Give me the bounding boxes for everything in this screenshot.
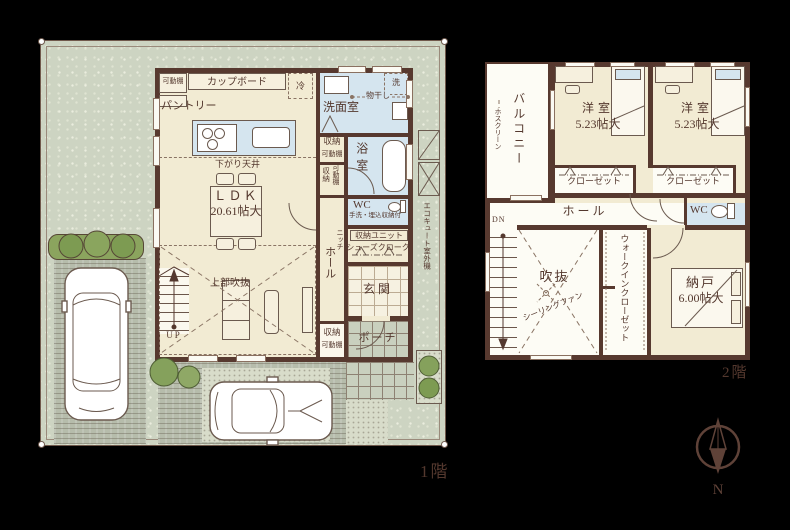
cupboard-label: カップボード bbox=[188, 77, 286, 89]
storeroom-name-label: 納戸 bbox=[661, 276, 741, 291]
storage-label: 収納 bbox=[320, 137, 344, 147]
wc2-label: WC bbox=[690, 204, 708, 217]
ecocute-label: エコキュート室外機 bbox=[422, 202, 431, 320]
hoscreen-label: ホスクリーン bbox=[494, 108, 502, 184]
wic-label: ウォークインクローゼット bbox=[619, 234, 629, 352]
closet-hanger bbox=[559, 167, 729, 175]
floor1-site-plan: 可動棚 カップボード 冷 パントリー 洗面室 物干し 洗 収納 可動棚 収納 可… bbox=[40, 40, 446, 446]
room2-name-label: 洋室 bbox=[657, 102, 737, 116]
movable-shelf-label: 可動棚 bbox=[320, 150, 344, 158]
hall2-label: ホール bbox=[545, 205, 625, 219]
movable-shelf-label: 可動棚 bbox=[332, 164, 340, 196]
stairs-dn-label: DN bbox=[492, 215, 506, 224]
door-arcs bbox=[630, 194, 684, 258]
hedge-bushes bbox=[59, 231, 135, 258]
balcony-label: バルコニー bbox=[511, 92, 525, 198]
laundry-pole-label: 物干し bbox=[366, 91, 390, 100]
movable-shelf-label: 可動棚 bbox=[159, 77, 187, 85]
storage-unit-label: 収納ユニット bbox=[350, 230, 408, 241]
floor1-caption: 1階 bbox=[420, 462, 450, 482]
void-label: 吹抜 bbox=[527, 270, 582, 285]
compass: N bbox=[690, 412, 750, 512]
entrance-label: 玄関 bbox=[348, 283, 408, 297]
garden-tree bbox=[150, 358, 200, 388]
planter-bushes bbox=[419, 356, 439, 398]
storage-label: 収納 bbox=[320, 328, 344, 338]
car-top-view-vertical bbox=[62, 268, 131, 420]
stairs-up-label: UP bbox=[159, 330, 189, 340]
hall-label: ホール bbox=[323, 246, 336, 298]
niche-label: ニッチ bbox=[336, 229, 344, 263]
porch-label: ポーチ bbox=[348, 332, 408, 345]
compass-icon bbox=[690, 412, 750, 482]
void-cross bbox=[519, 230, 597, 353]
ldk-name-label: ＬＤＫ bbox=[196, 189, 276, 204]
storeroom-size-label: 6.00帖大 bbox=[661, 292, 741, 306]
floor-plan-image: 可動棚 カップボード 冷 パントリー 洗面室 物干し 洗 収納 可動棚 収納 可… bbox=[0, 0, 790, 530]
shoes-cloak-label: シューズクローク bbox=[346, 243, 410, 252]
room2-size-label: 5.23帖大 bbox=[657, 118, 737, 132]
wc-label: WC bbox=[353, 199, 371, 212]
floor2-caption: 2階 bbox=[722, 365, 749, 382]
wc-note-label: 手洗・埋込収納付 bbox=[349, 212, 401, 219]
room1-size-label: 5.23帖大 bbox=[558, 118, 638, 132]
stairs-down-arrow bbox=[499, 234, 507, 349]
closet-label: クローゼット bbox=[653, 176, 733, 186]
open-above-label: 上部吹抜 bbox=[190, 278, 270, 290]
bathroom-label: 浴室 bbox=[354, 142, 368, 190]
ldk-size-label: 20.61帖大 bbox=[191, 205, 281, 219]
ceiling-fan-icon bbox=[537, 284, 555, 302]
car-top-view-horizontal bbox=[210, 377, 332, 445]
room1-name-label: 洋室 bbox=[558, 102, 638, 116]
closet-label: クローゼット bbox=[555, 176, 633, 186]
storage-label: 収納 bbox=[321, 167, 330, 193]
pantry-label: パントリー bbox=[161, 100, 217, 113]
washer-label: 洗 bbox=[384, 78, 408, 87]
ecocute-marks bbox=[419, 131, 439, 195]
compass-north-label: N bbox=[690, 482, 746, 499]
movable-shelf-label: 可動棚 bbox=[320, 341, 344, 349]
stairs-up-arrow bbox=[159, 267, 189, 329]
fridge-label: 冷 bbox=[288, 81, 313, 91]
floor2-plan: バルコニー ホスクリーン 洋室 5.23帖大 洋室 5.23帖大 クローゼット … bbox=[485, 62, 755, 368]
washroom-label: 洗面室 bbox=[323, 101, 359, 115]
lowered-ceiling-label: 下がり天井 bbox=[159, 159, 316, 169]
